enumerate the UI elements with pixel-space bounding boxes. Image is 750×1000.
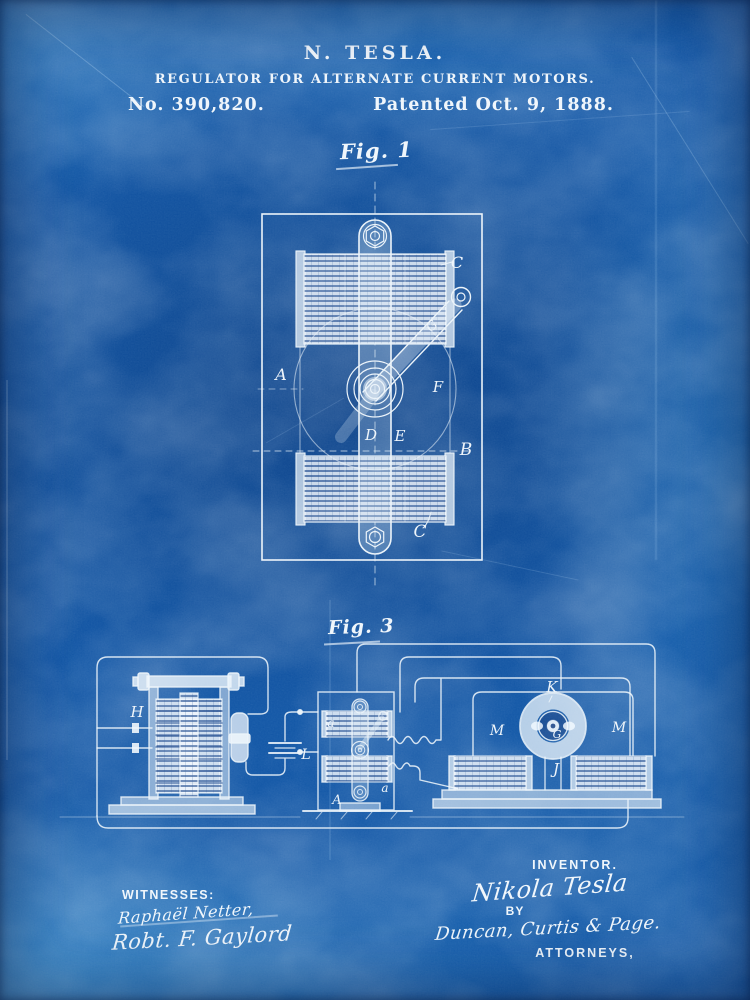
fig1-label-c-top: C bbox=[451, 253, 463, 272]
fig3-label-a-top: a bbox=[327, 716, 334, 730]
witnesses-heading: WITNESSES: bbox=[122, 888, 215, 902]
fig3-label-m-right: M bbox=[611, 720, 627, 736]
fig3-battery bbox=[269, 743, 301, 758]
fig3-rotor bbox=[520, 693, 586, 759]
fig1-label-e: E bbox=[394, 427, 406, 445]
fig3-drawing bbox=[60, 644, 684, 828]
fig3-left-machine bbox=[109, 673, 255, 814]
fig1-label-c-bottom: C bbox=[413, 522, 426, 542]
patent-drawings: C G A F D E B C bbox=[0, 0, 750, 1000]
fig3-label-h: H bbox=[129, 703, 144, 721]
fig1-label-a: A bbox=[273, 365, 287, 384]
fig3-label-a-bottom: a bbox=[381, 781, 388, 795]
fig1-drawing bbox=[253, 182, 482, 585]
fig3-label-m-left: M bbox=[489, 723, 505, 739]
fig1-label-b: B bbox=[459, 440, 473, 460]
fig3-label-j: J bbox=[550, 760, 560, 778]
attorneys-heading: ATTORNEYS, bbox=[500, 946, 670, 960]
fig3-middle-regulator bbox=[303, 692, 412, 819]
fig1-label-f: F bbox=[432, 378, 444, 396]
patent-blueprint-poster: N. TESLA. REGULATOR FOR ALTERNATE CURREN… bbox=[0, 0, 750, 1000]
fig3-label-l: L bbox=[300, 747, 310, 763]
fig3-label-a-cap: A bbox=[331, 793, 341, 808]
fig3-label-g: G bbox=[553, 728, 562, 741]
fig3-right-motor bbox=[433, 693, 661, 808]
fig1-label-d: D bbox=[364, 426, 377, 444]
fig3-label-k: K bbox=[545, 678, 558, 696]
